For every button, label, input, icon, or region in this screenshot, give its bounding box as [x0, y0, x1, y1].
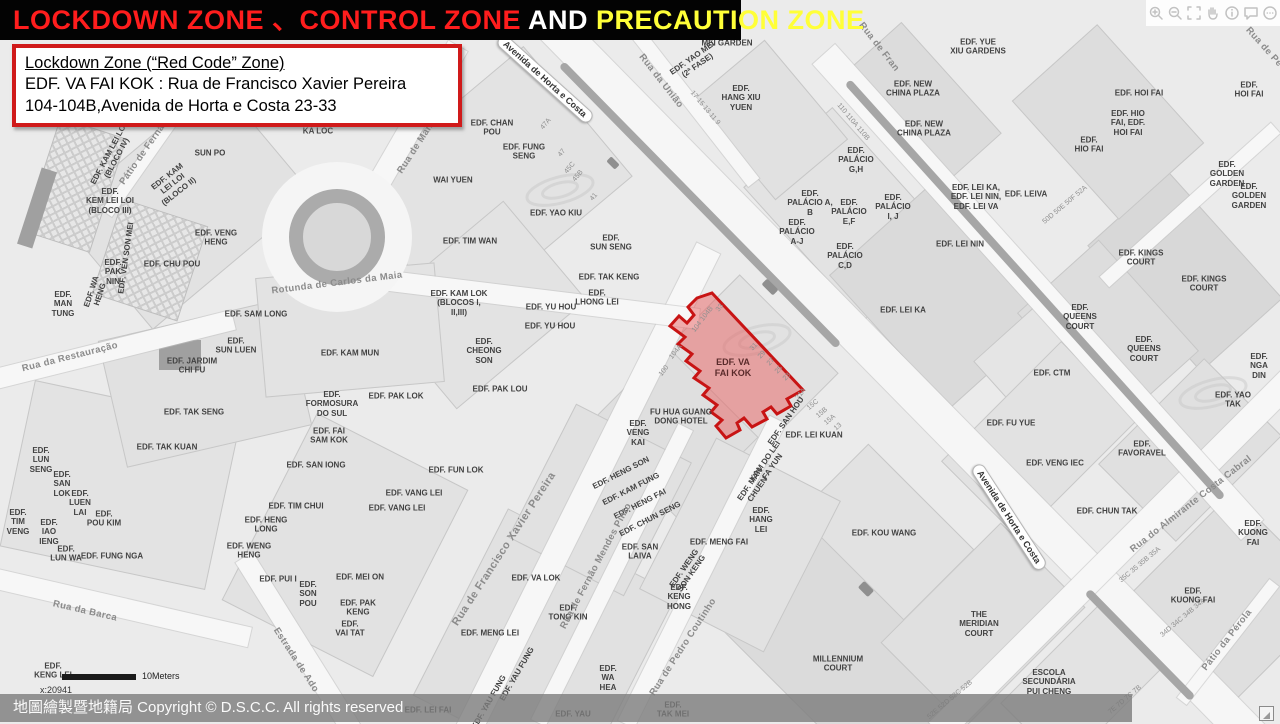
chat-icon: [1262, 5, 1278, 21]
pan-hand-icon: [1205, 5, 1221, 21]
zoom-in-icon: [1148, 5, 1164, 21]
house-number: 15B: [815, 406, 829, 419]
house-number: 50D 50E 50F 52A: [1041, 184, 1088, 225]
cursor-coordinates: x:20941: [40, 685, 72, 695]
info-box-title: Lockdown Zone (“Red Code” Zone): [25, 53, 449, 74]
overview-map-toggle[interactable]: [1259, 706, 1274, 721]
map-application: EDF. KAM LEI LOI (BLOCO IV)SUN POEDF. KA…: [0, 0, 1280, 724]
fullscreen-button[interactable]: [1186, 4, 1203, 22]
zoom-in-button[interactable]: [1148, 4, 1165, 22]
zoom-out-icon: [1167, 5, 1183, 21]
info-button[interactable]: [1223, 4, 1240, 22]
title-banner: LOCKDOWN ZONE 、CONTROL ZONE AND PRECAUTI…: [0, 0, 741, 40]
house-number: 13: [833, 422, 843, 432]
map-toolbar: [1146, 0, 1280, 26]
comment-icon: [1243, 5, 1259, 21]
house-number: 15A: [823, 413, 837, 426]
roundabout: [262, 162, 412, 312]
banner-segment: AND: [528, 5, 596, 35]
info-box-line: 104-104B,Avenida de Horta e Costa 23-33: [25, 96, 449, 117]
pan-button[interactable]: [1205, 4, 1222, 22]
banner-segment: LOCKDOWN ZONE 、CONTROL ZONE: [13, 5, 528, 35]
scale-distance: 10Meters: [142, 671, 180, 681]
fullscreen-icon: [1186, 5, 1202, 21]
comment-button[interactable]: [1242, 4, 1259, 22]
lockdown-info-box: Lockdown Zone (“Red Code” Zone) EDF. VA …: [12, 44, 462, 127]
banner-segment: PRECAUTION ZONE: [596, 5, 865, 35]
copyright-bar: 地圖繪製暨地籍局 Copyright © D.S.C.C. All rights…: [0, 694, 1132, 722]
info-icon: [1224, 5, 1240, 21]
info-box-line: EDF. VA FAI KOK : Rua de Francisco Xavie…: [25, 74, 449, 95]
chat-button[interactable]: [1261, 4, 1278, 22]
zoom-out-button[interactable]: [1167, 4, 1184, 22]
scale-bar: [62, 674, 136, 680]
